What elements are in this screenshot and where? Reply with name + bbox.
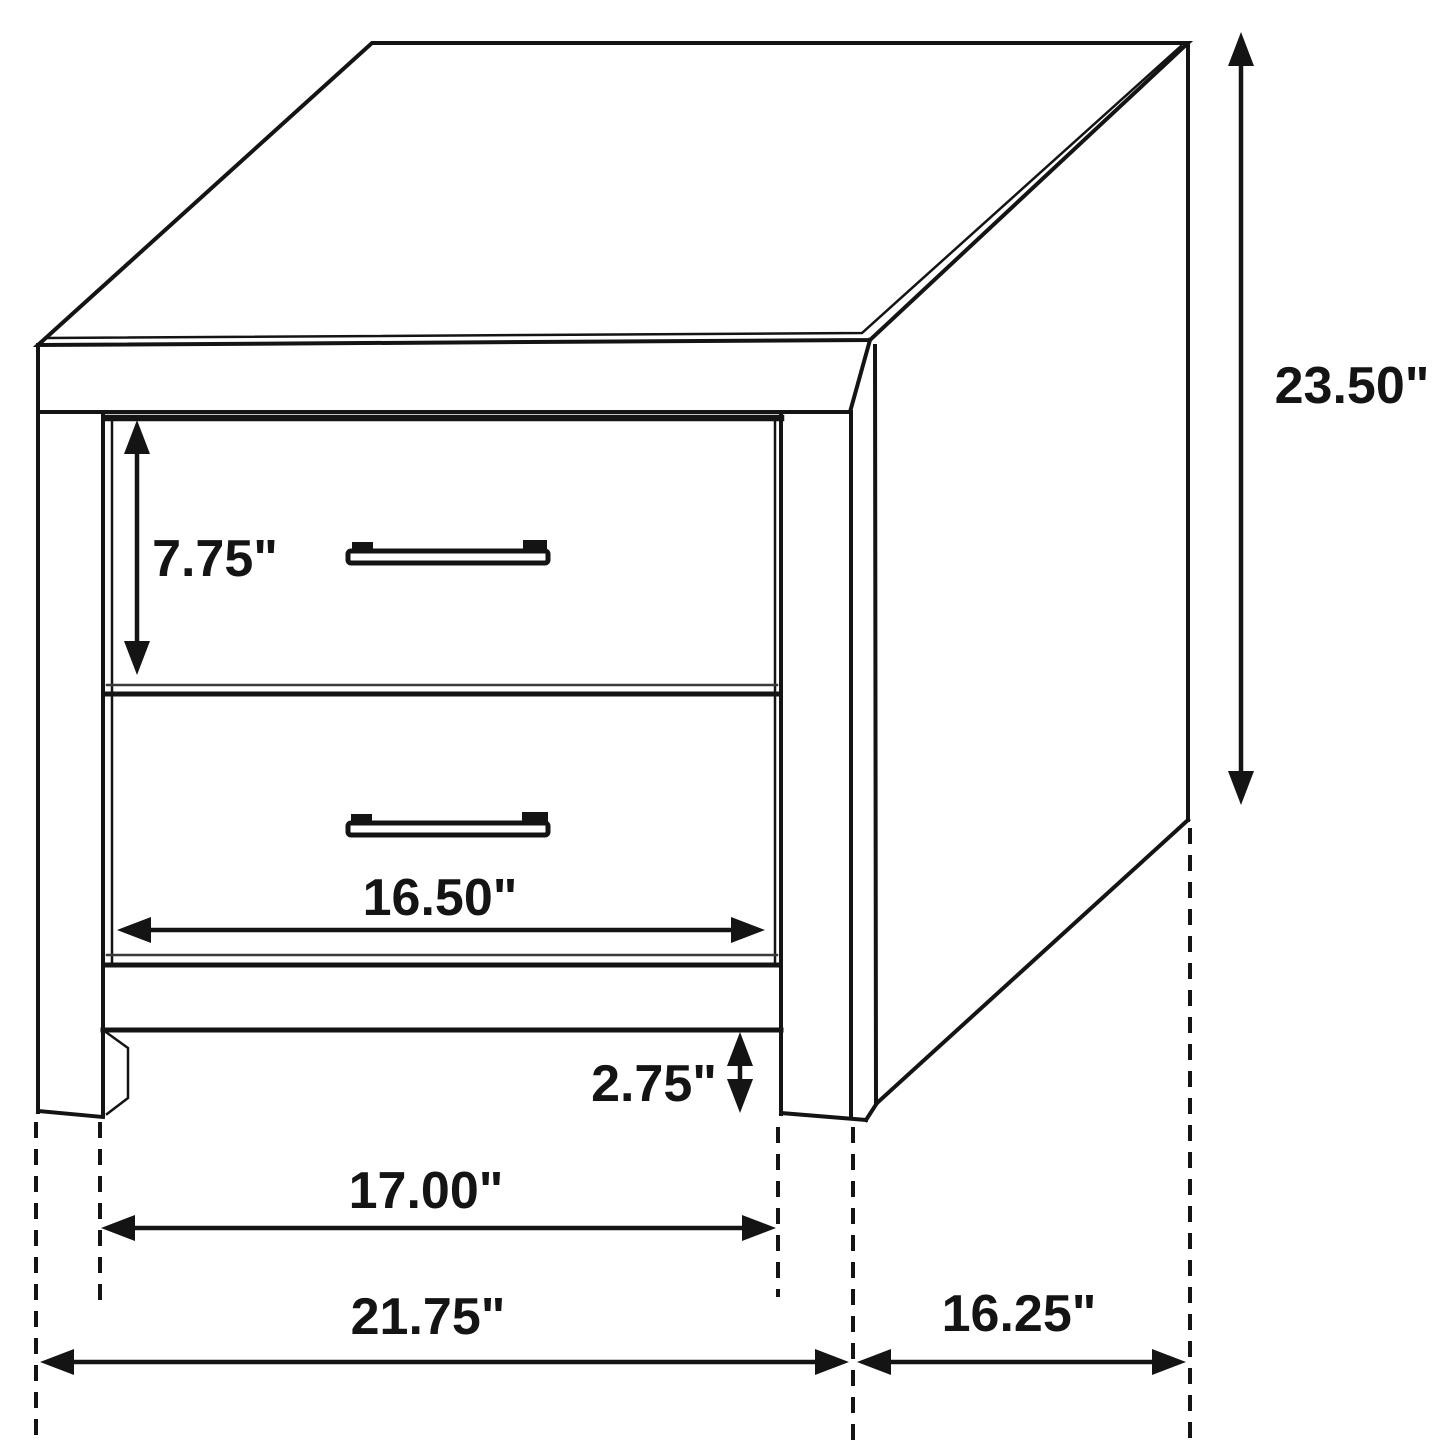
dimension-overall-depth: 16.25" — [857, 1285, 1186, 1375]
dim-label-leg-clearance: 2.75" — [591, 1055, 717, 1113]
dim-label-drawer-front-height: 7.75" — [152, 530, 278, 588]
drawer-1-handle-icon — [348, 540, 548, 563]
top-slab-front-band — [38, 340, 870, 412]
dimension-drawer-width: 16.50" — [117, 869, 765, 943]
dim-label-drawer-width: 16.50" — [363, 869, 518, 927]
dimension-leg-clearance: 2.75" — [591, 1032, 753, 1113]
extension-lines — [36, 828, 1190, 1440]
nightstand-front-frame — [38, 346, 877, 1120]
drawer-2-handle-icon — [348, 812, 548, 835]
dim-label-overall-width: 21.75" — [351, 1288, 506, 1346]
nightstand-dimension-diagram: 7.75" 23.50" 16.50" 2.75" 17.00" 21.75" — [0, 0, 1445, 1445]
dim-label-overall-depth: 16.25" — [942, 1285, 1097, 1343]
dimension-inner-leg-span: 17.00" — [101, 1162, 776, 1241]
nightstand-side-panel — [877, 43, 1188, 1103]
diagram-canvas: 7.75" 23.50" 16.50" 2.75" 17.00" 21.75" — [0, 0, 1445, 1445]
dimension-drawer-front-height: 7.75" — [124, 420, 278, 675]
nightstand-top-face — [38, 43, 1188, 345]
dim-label-inner-leg-span: 17.00" — [349, 1162, 504, 1220]
dimension-overall-height: 23.50" — [1228, 32, 1429, 805]
dim-label-overall-height: 23.50" — [1275, 357, 1430, 415]
dimension-overall-width: 21.75" — [40, 1288, 849, 1375]
